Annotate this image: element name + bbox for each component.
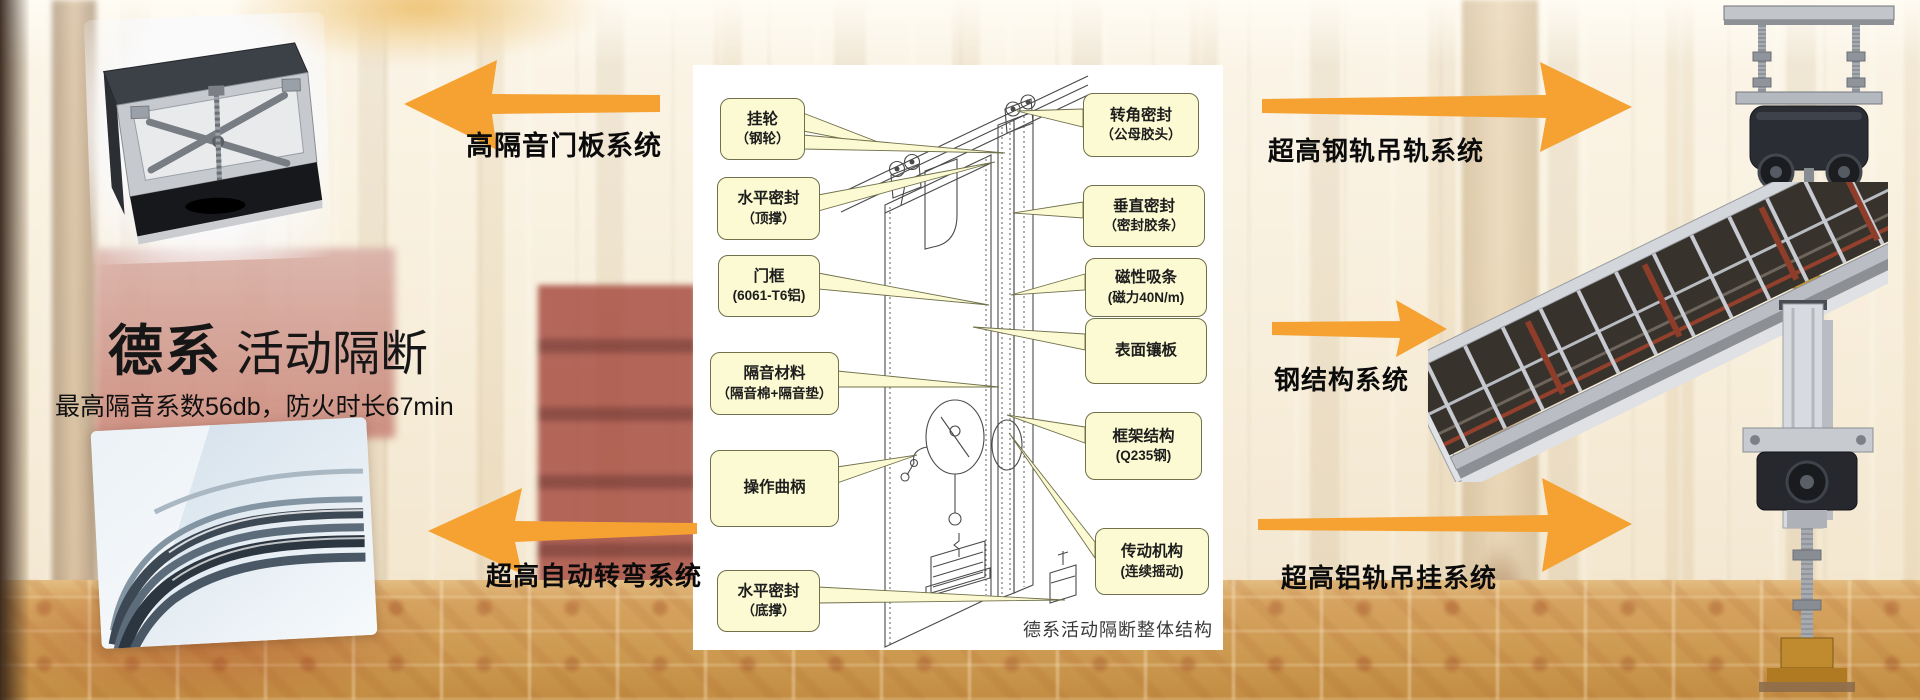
product-title-light: 活动隔断 [236, 328, 428, 381]
callout-door-frame: 门框 (6061-T6铝) [718, 255, 820, 317]
callout-frame-structure: 框架结构 (Q235钢) [1085, 412, 1202, 480]
callout-line: 隔音材料 [743, 365, 805, 384]
callout-line: （隔音棉+隔音垫） [717, 386, 833, 402]
callout-line: (6061-T6铝) [733, 288, 806, 304]
label-alu-rail-system: 超高铝轨吊挂系统 [1281, 558, 1497, 595]
callout-line: 磁性吸条 [1115, 269, 1177, 288]
callout-line: 传动机构 [1121, 543, 1183, 562]
callout-line: 挂轮 [747, 111, 778, 130]
callout-operating-crank: 操作曲柄 [710, 450, 839, 527]
photo-soundproof-door-mechanism [84, 12, 332, 265]
callout-line: 门框 [753, 268, 784, 287]
slide-canvas: 德系活动隔断 最高隔音系数56db，防火时长67min 高隔音门板系统 超高自动… [0, 0, 1920, 700]
callout-magnetic-strip: 磁性吸条 (磁力40N/m) [1085, 258, 1207, 317]
diagram-caption: 德系活动隔断整体结构 [1023, 616, 1213, 642]
callout-line: （底撑） [742, 603, 796, 619]
callout-hanging-wheel: 挂轮 （钢轮） [720, 98, 805, 160]
callout-line: 水平密封 [737, 190, 799, 209]
callout-line: （顶撑） [742, 211, 796, 227]
label-door-panel-system: 高隔音门板系统 [466, 124, 662, 163]
label-steel-rail-system: 超高钢轨吊轨系统 [1268, 131, 1484, 168]
callout-line: （密封胶条） [1104, 218, 1185, 234]
callout-line: 操作曲柄 [743, 479, 805, 498]
background-red-panel-mid [538, 285, 696, 585]
callout-line: （公母胶头） [1101, 127, 1182, 143]
callout-surface-panel: 表面镶板 [1085, 318, 1207, 384]
product-subtitle: 最高隔音系数56db，防火时长67min [55, 387, 454, 423]
callout-line: (连续摇动) [1121, 564, 1184, 580]
arrow-steel-structure-system [1272, 300, 1447, 357]
diagram-panel: 挂轮 （钢轮） 水平密封 （顶撑） 门框 (6061-T6铝) 隔音材料 （隔音… [693, 65, 1223, 650]
callout-line: 表面镶板 [1115, 342, 1177, 361]
label-auto-turn-system: 超高自动转弯系统 [486, 556, 702, 593]
callout-line: 转角密封 [1110, 107, 1172, 126]
photo-auto-turning-track [90, 417, 377, 649]
callout-line: 框架结构 [1112, 428, 1174, 447]
callout-line: 垂直密封 [1113, 198, 1175, 217]
callout-line: （钢轮） [736, 131, 790, 147]
background-dark-edge [0, 0, 30, 700]
product-title: 德系活动隔断 [108, 306, 428, 386]
callout-vertical-seal: 垂直密封 （密封胶条） [1083, 185, 1205, 247]
callout-line: 水平密封 [737, 583, 799, 602]
callout-line: (Q235钢) [1116, 448, 1172, 464]
callout-sound-insulation-material: 隔音材料 （隔音棉+隔音垫） [710, 352, 839, 415]
product-title-bold: 德系 [108, 320, 222, 382]
photo-aluminum-rail-hanger [1695, 300, 1920, 700]
callout-corner-seal: 转角密封 （公母胶头） [1083, 93, 1199, 157]
callout-line: (磁力40N/m) [1108, 290, 1185, 306]
label-steel-structure-system: 钢结构系统 [1274, 360, 1409, 397]
callout-horizontal-seal-bottom: 水平密封 （底撑） [717, 570, 820, 632]
callout-horizontal-seal-top: 水平密封 （顶撑） [717, 177, 820, 240]
callout-drive-mechanism: 传动机构 (连续摇动) [1095, 528, 1209, 595]
